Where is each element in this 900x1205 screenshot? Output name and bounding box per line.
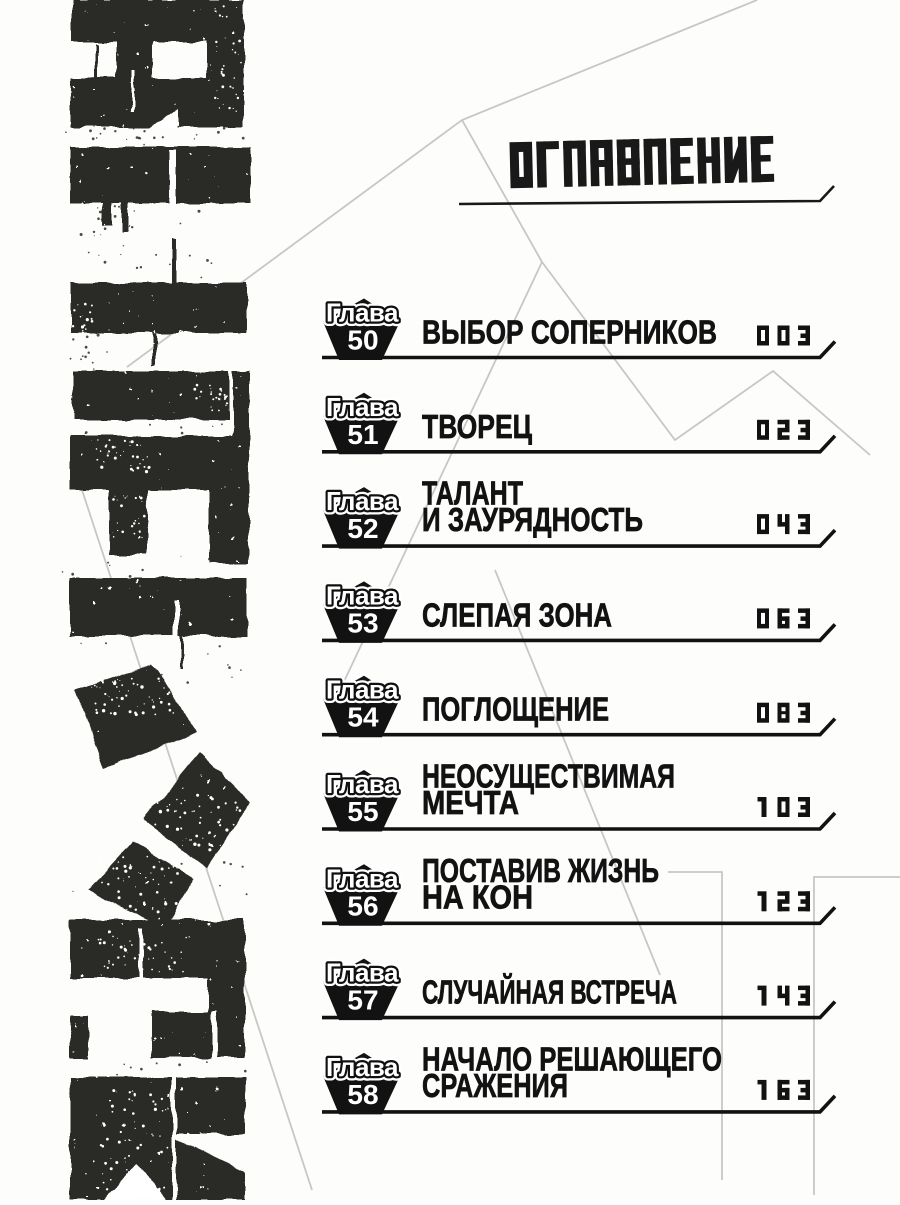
svg-text:ВЫБОР СОПЕРНИКОВ: ВЫБОР СОПЕРНИКОВ bbox=[422, 314, 717, 351]
svg-text:53: 53 bbox=[347, 607, 378, 638]
svg-text:СЛУЧАЙНАЯ ВСТРЕЧА: СЛУЧАЙНАЯ ВСТРЕЧА bbox=[422, 973, 677, 1011]
svg-text:Глава: Глава bbox=[326, 863, 399, 893]
svg-text:57: 57 bbox=[347, 985, 378, 1016]
svg-text:Глава: Глава bbox=[326, 580, 399, 610]
svg-text:56: 56 bbox=[347, 890, 378, 921]
svg-text:55: 55 bbox=[347, 796, 378, 827]
svg-text:НА КОН: НА КОН bbox=[422, 878, 533, 915]
svg-text:51: 51 bbox=[347, 419, 378, 450]
svg-text:50: 50 bbox=[347, 325, 378, 356]
svg-text:ПОГЛОЩЕНИЕ: ПОГЛОЩЕНИЕ bbox=[422, 691, 609, 728]
svg-text:Глава: Глава bbox=[326, 392, 399, 422]
svg-text:Глава: Глава bbox=[326, 769, 399, 799]
svg-text:СРАЖЕНИЯ: СРАЖЕНИЯ bbox=[422, 1067, 568, 1104]
svg-text:Глава: Глава bbox=[326, 1052, 399, 1082]
svg-text:МЕЧТА: МЕЧТА bbox=[422, 784, 519, 821]
svg-text:СЛЕПАЯ ЗОНА: СЛЕПАЯ ЗОНА bbox=[422, 596, 612, 633]
svg-text:52: 52 bbox=[347, 513, 378, 544]
svg-text:Глава: Глава bbox=[326, 298, 399, 328]
svg-text:Глава: Глава bbox=[326, 958, 399, 988]
svg-text:ТВОРЕЦ: ТВОРЕЦ bbox=[422, 408, 532, 445]
svg-text:И ЗАУРЯДНОСТЬ: И ЗАУРЯДНОСТЬ bbox=[422, 501, 643, 538]
svg-text:Глава: Глава bbox=[326, 675, 399, 705]
svg-text:Глава: Глава bbox=[326, 486, 399, 516]
svg-text:58: 58 bbox=[347, 1079, 378, 1110]
svg-text:54: 54 bbox=[347, 702, 379, 733]
